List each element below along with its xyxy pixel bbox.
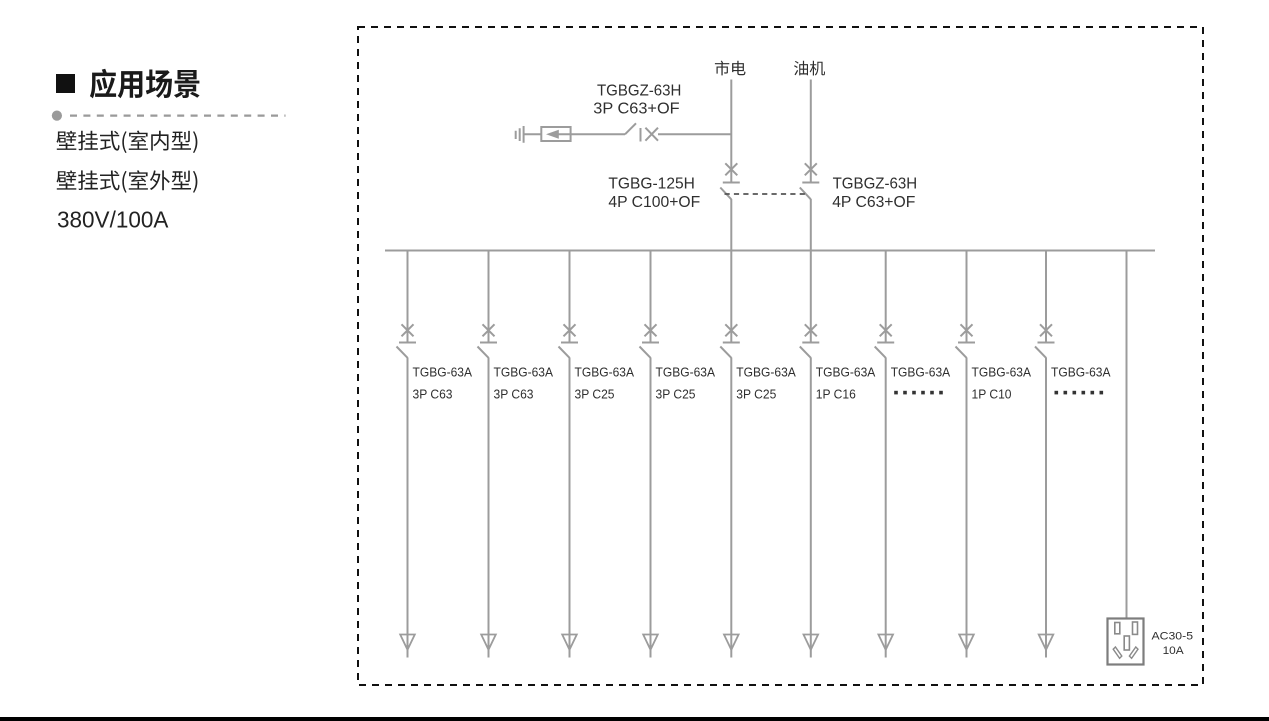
svg-text:TGBG-63A: TGBG-63A (656, 364, 716, 379)
svg-text:3P C63: 3P C63 (413, 387, 453, 402)
svg-text:1P C16: 1P C16 (816, 387, 856, 402)
svg-text:TGBG-63A: TGBG-63A (736, 364, 796, 379)
svg-text:1P C10: 1P C10 (972, 387, 1012, 402)
svg-text:3P C25: 3P C25 (736, 387, 776, 402)
svg-text:3P C63+OF: 3P C63+OF (593, 100, 680, 117)
svg-text:TGBG-63A: TGBG-63A (1051, 364, 1111, 379)
svg-text:TGBG-125H: TGBG-125H (608, 176, 695, 193)
svg-text:3P C25: 3P C25 (575, 387, 615, 402)
svg-text:3P C25: 3P C25 (656, 387, 696, 402)
svg-text:10A: 10A (1163, 645, 1185, 657)
svg-text:TGBGZ-63H: TGBGZ-63H (597, 82, 681, 99)
svg-text:TGBG-63A: TGBG-63A (972, 364, 1032, 379)
svg-text:TGBG-63A: TGBG-63A (816, 364, 876, 379)
svg-text:TGBG-63A: TGBG-63A (494, 364, 554, 379)
svg-text:3P C63: 3P C63 (494, 387, 534, 402)
svg-text:TGBG-63A: TGBG-63A (413, 364, 473, 379)
svg-text:TGBG-63A: TGBG-63A (891, 364, 951, 379)
svg-text:TGBGZ-63H: TGBGZ-63H (833, 176, 918, 193)
svg-text:380V/100A: 380V/100A (57, 206, 169, 232)
svg-text:4P C63+OF: 4P C63+OF (832, 194, 915, 211)
svg-text:4P C100+OF: 4P C100+OF (608, 194, 700, 211)
svg-text:AC30-5: AC30-5 (1152, 631, 1194, 643)
svg-text:TGBG-63A: TGBG-63A (575, 364, 635, 379)
